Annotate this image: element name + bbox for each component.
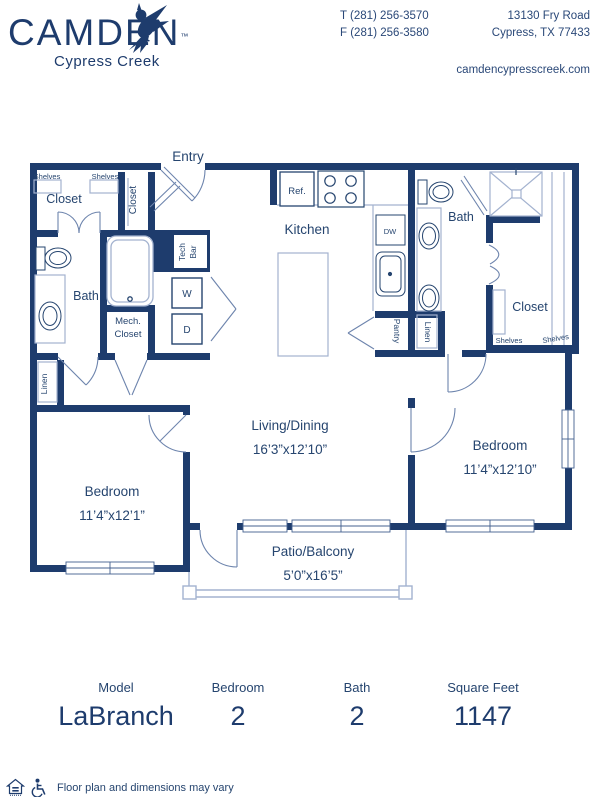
bath-door [448, 354, 486, 392]
label-tech-bar: Tech [177, 243, 187, 261]
summary-bar: Model LaBranch Bedroom 2 Bath 2 Square F… [0, 680, 600, 750]
disclaimer-text: Floor plan and dimensions may vary [57, 782, 234, 794]
label-dryer: D [183, 325, 190, 336]
window [446, 520, 534, 532]
label-mech: Mech. [115, 316, 141, 327]
closet-shelf [493, 290, 505, 334]
bathtub-icon [107, 236, 153, 306]
stove-icon [318, 171, 364, 207]
label-closet: Closet [128, 186, 139, 215]
accessibility-icon [30, 778, 48, 797]
window [66, 562, 154, 574]
label-closet: Closet [46, 192, 82, 206]
kitchen-island [278, 253, 328, 356]
label-bedroom: Bedroom [85, 484, 140, 499]
summary-label: Bath [344, 680, 371, 695]
header: CAMDEN™ Cypress Creek T (281) 256-3570 F… [0, 0, 600, 110]
disclaimer: Floor plan and dimensions may vary [6, 778, 234, 797]
sliding-door [292, 520, 390, 532]
closet-shelf [90, 180, 118, 193]
pantry-door [348, 317, 374, 349]
label-bath: Bath [448, 210, 474, 224]
equal-housing-icon [6, 778, 25, 797]
label-bath: Bath [73, 289, 99, 303]
window [562, 410, 574, 468]
label-closet: Closet [512, 300, 548, 314]
label-bedroom-dim: 11’4”x12’1” [79, 508, 145, 523]
entry-door [161, 167, 205, 201]
brand-trademark: ™ [180, 32, 188, 41]
label-bedroom-dim: 11’4”x12’10” [463, 462, 536, 477]
label-kitchen: Kitchen [284, 222, 329, 237]
label-shelves: Shelves [496, 336, 523, 345]
shower-icon [490, 168, 542, 216]
address-line1: 13130 Fry Road [492, 8, 590, 25]
label-shelves: Shelves [34, 172, 61, 181]
bedroom-door [149, 415, 186, 452]
address-line2: Cypress, TX 77433 [492, 25, 590, 42]
room-labels: Entry Shelves Shelves Closet Closet Bath… [34, 150, 570, 583]
bedroom-door [411, 408, 455, 452]
summary-label: Model [58, 680, 174, 695]
label-shelves: Shelves [92, 172, 119, 181]
summary-value: LaBranch [58, 701, 174, 732]
hummingbird-icon [122, 2, 170, 56]
summary-square-feet: Square Feet 1147 [447, 680, 519, 732]
label-linen: Linen [423, 322, 433, 343]
label-living: Living/Dining [251, 418, 328, 433]
summary-value: 2 [212, 701, 265, 732]
bifold-doors [115, 360, 147, 395]
summary-value: 1147 [447, 701, 519, 732]
summary-value: 2 [344, 701, 371, 732]
label-shelves: Shelves [542, 332, 570, 345]
double-doors [58, 212, 100, 233]
bifold-doors [211, 277, 236, 341]
sink-icon [39, 302, 61, 330]
contact-address-block: 13130 Fry Road Cypress, TX 77433 [492, 8, 590, 42]
label-dw: DW [384, 227, 397, 236]
label-tech-bar: Bar [188, 245, 198, 258]
label-patio-dim: 5’0”x16’5” [283, 568, 342, 583]
summary-label: Square Feet [447, 680, 519, 695]
summary-label: Bedroom [212, 680, 265, 695]
patio-door [200, 530, 237, 567]
contact-phone-block: T (281) 256-3570 F (281) 256-3580 [340, 8, 429, 42]
summary-model: Model LaBranch [58, 680, 174, 732]
label-patio: Patio/Balcony [272, 544, 355, 559]
phone-number: T (281) 256-3570 [340, 8, 429, 25]
window [243, 520, 287, 532]
label-washer: W [182, 289, 192, 300]
summary-bath: Bath 2 [344, 680, 371, 732]
toilet-icon [36, 247, 71, 270]
summary-bedroom: Bedroom 2 [212, 680, 265, 732]
toilet-icon [418, 180, 453, 204]
label-living-dim: 16’3”x12’10” [253, 442, 327, 457]
label-linen: Linen [39, 373, 49, 394]
website-text: camdencypresscreek.com [456, 64, 590, 76]
label-entry: Entry [172, 150, 204, 164]
accordion-door [489, 245, 499, 284]
floorplan-drawing: Entry Shelves Shelves Closet Closet Bath… [0, 150, 600, 665]
patio-rail [183, 530, 412, 599]
fax-number: F (281) 256-3580 [340, 25, 429, 42]
label-pantry: Pantry [392, 319, 402, 344]
label-ref: Ref. [288, 186, 305, 197]
label-bedroom: Bedroom [473, 438, 528, 453]
label-mech-closet: Closet [115, 329, 142, 340]
kitchen-sink-icon [376, 252, 405, 296]
